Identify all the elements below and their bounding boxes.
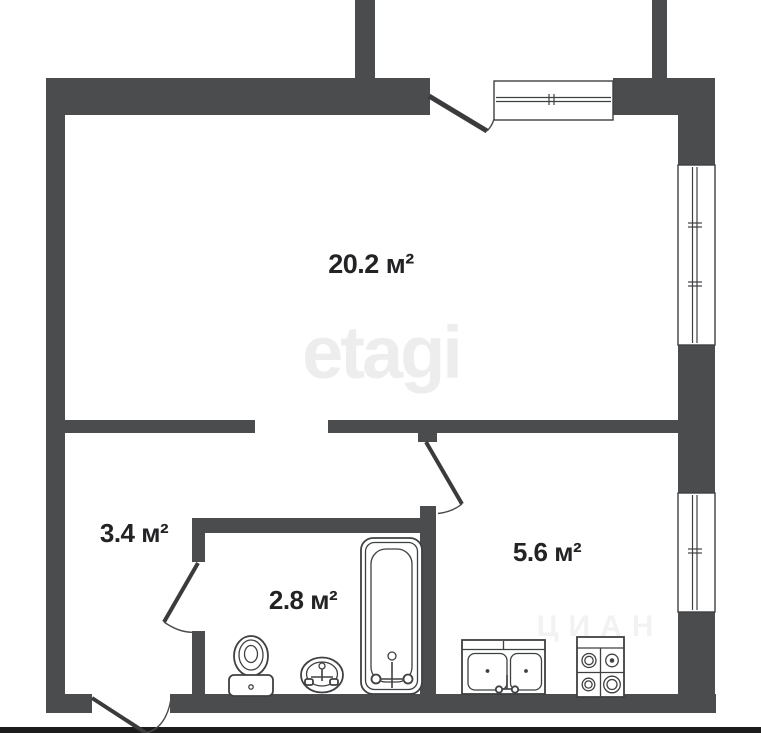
living-room-area-label: 20.2 м² bbox=[328, 249, 414, 279]
left-wall bbox=[46, 78, 65, 712]
interior-wall-east bbox=[328, 420, 678, 433]
stove bbox=[577, 637, 624, 697]
floor-plan-drawing: etagi ЦИАН bbox=[0, 0, 761, 733]
bathroom-left-wall-upper bbox=[192, 518, 205, 562]
wash-basin bbox=[301, 658, 343, 693]
living-room-window bbox=[678, 165, 715, 345]
kitchen-door-jamb bbox=[418, 433, 437, 442]
kitchen-area-label: 5.6 м² bbox=[513, 537, 582, 567]
hallway-area-label: 3.4 м² bbox=[100, 518, 169, 548]
bathroom-left-wall-lower bbox=[192, 631, 205, 694]
bathroom-door bbox=[164, 563, 198, 632]
interior-wall-west bbox=[65, 420, 255, 433]
building-baseline bbox=[0, 727, 761, 733]
kitchen-sink bbox=[462, 640, 545, 694]
balcony-wall-left bbox=[355, 0, 375, 79]
kitchen-door bbox=[426, 442, 462, 514]
top-wall-left bbox=[46, 78, 430, 115]
floor-plan: etagi ЦИАН bbox=[0, 0, 761, 733]
balcony-wall-right bbox=[652, 0, 667, 79]
bathtub bbox=[361, 538, 422, 694]
toilet bbox=[229, 636, 273, 696]
bathroom-area-label: 2.8 м² bbox=[269, 585, 338, 615]
kitchen-window bbox=[678, 493, 715, 612]
balcony-window bbox=[494, 81, 613, 120]
balcony-door bbox=[429, 96, 494, 131]
etagi-watermark: etagi bbox=[302, 311, 460, 394]
bathroom-top-wall bbox=[192, 518, 436, 533]
bottom-wall-stub bbox=[46, 694, 92, 713]
